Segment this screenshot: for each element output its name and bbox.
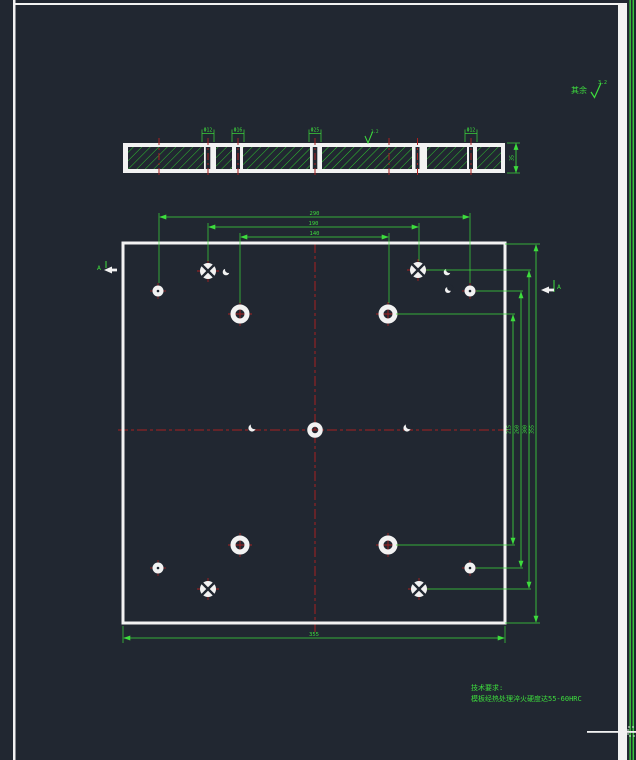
dim-label: 140 (310, 231, 320, 237)
frame-green-line-inner (633, 0, 634, 760)
hole-dim-label: Φ25 (311, 128, 320, 134)
plate-outline[interactable] (123, 243, 505, 623)
hole-dim-label: Φ12 (467, 128, 476, 134)
arc-mark (445, 285, 453, 293)
cad-viewport: 其余 3.2 (0, 0, 636, 760)
crosshair-hole (197, 578, 219, 600)
arc-mark (444, 266, 453, 275)
section-marker-left: A (97, 261, 117, 274)
notes-body: 模板经热处理淬火硬度达55-60HRC (471, 694, 582, 703)
dim-label: 215 (507, 425, 513, 434)
arc-marks (223, 266, 453, 431)
dim-label: 355 (309, 632, 319, 638)
dim-label: 190 (309, 221, 319, 227)
surface-note-prefix: 其余 (571, 85, 587, 95)
section-arrow-icon (541, 287, 554, 294)
crosshair-hole (197, 260, 219, 282)
cad-canvas: 其余 3.2 (0, 0, 636, 760)
technical-notes[interactable]: 技术要求: 模板经热处理淬火硬度达55-60HRC (471, 683, 582, 703)
crosshair-hole (408, 578, 430, 600)
dim-label: 355 (530, 425, 536, 434)
corner-surface-note[interactable]: 其余 3.2 (571, 80, 607, 98)
ring-hole (228, 533, 252, 557)
dim-label: 290 (310, 211, 320, 217)
surface-note-value: 3.2 (598, 80, 607, 86)
small-hole (150, 283, 166, 299)
section-marker-right: A (541, 280, 561, 294)
plan-view[interactable]: 290 190 140 215 260 300 (97, 211, 561, 643)
notes-title: 技术要求: (471, 683, 503, 692)
dim-label: 260 (515, 425, 521, 434)
frame-left-border (13, 0, 16, 760)
arc-mark (223, 266, 232, 275)
ring-hole (228, 302, 252, 326)
crosshair-hole (407, 259, 429, 281)
bottom-dimension[interactable]: 355 (123, 626, 505, 643)
section-roughness-mark: 3.2 (365, 129, 379, 143)
sheet-frame (13, 0, 636, 760)
title-block-top-line (587, 731, 636, 733)
section-letter: A (97, 264, 101, 272)
dim-label: 300 (523, 425, 529, 434)
small-hole (150, 560, 166, 576)
frame-right-border (618, 3, 627, 760)
section-hole-dimensions[interactable]: Φ12 Φ16 Φ25 Φ12 (202, 128, 477, 143)
small-hole (462, 283, 478, 299)
hole-dim-label: Φ12 (204, 128, 213, 134)
small-hole (462, 560, 478, 576)
section-thickness-dimension[interactable]: 35 (507, 143, 520, 173)
thickness-label: 35 (510, 155, 516, 161)
section-view[interactable]: Φ12 Φ16 Φ25 Φ12 3. (123, 128, 520, 179)
section-letter: A (557, 283, 561, 291)
frame-top-border (13, 3, 619, 5)
frame-green-line-outer (630, 0, 631, 760)
hole-dim-label: Φ16 (234, 128, 243, 134)
section-roughness-value: 3.2 (371, 129, 379, 134)
